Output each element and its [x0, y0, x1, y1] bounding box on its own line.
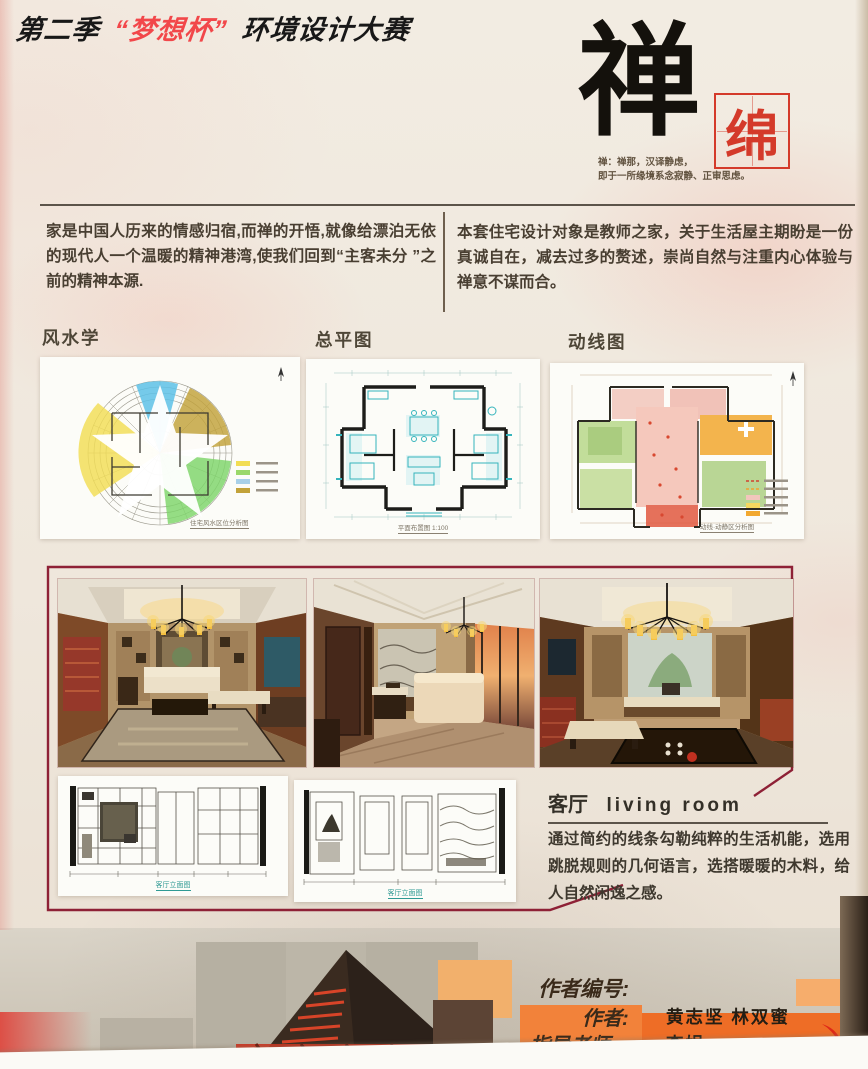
title-prefix: 第二季: [14, 15, 101, 45]
zen-definition-line1: 禅：禅那，汉译静虑，: [598, 156, 858, 170]
render-photo-2: [314, 579, 534, 767]
elevation-caption-2: 客厅立面图: [294, 888, 516, 898]
competition-poster: 第二季 “梦想杯” 环境设计大赛 禅 绵 禅：禅那，汉译静虑， 即于一所缘境系念…: [0, 0, 868, 1069]
living-room-heading-cn: 客厅: [548, 794, 588, 816]
poster-title: 第二季 “梦想杯” 环境设计大赛: [14, 8, 412, 47]
walls: [342, 387, 506, 509]
intro-paragraph-left: 家是中国人历来的情感归宿,而禅的开悟,就像给漂泊无依的现代人一个温暖的精神港湾,…: [46, 220, 436, 294]
author-names: 黄志坚 林双蜜: [666, 1004, 790, 1029]
label-circulation: 动线图: [568, 329, 627, 354]
living-room-description: 通过简约的线条勾勒纯粹的生活机能，选用跳脱规则的几何语言，选搭暖暖的木料，给人自…: [548, 826, 850, 907]
north-arrow-icon: [278, 367, 284, 381]
poster-left-edge: [0, 0, 14, 930]
title-suffix: 环境设计大赛: [240, 15, 411, 45]
intro-paragraph-right: 本套住宅设计对象是教师之家，关于生活屋主期盼是一份真诚自在，减去过多的赘述，崇尚…: [457, 221, 853, 295]
label-fengshui: 风水学: [42, 325, 101, 350]
title-highlight: “梦想杯”: [107, 15, 235, 45]
circulation-panel: 动线·动静区分析图: [550, 363, 804, 539]
elevation-drawing-2: [294, 780, 516, 902]
zen-definition: 禅：禅那，汉译静虑， 即于一所缘境系念寂静、正审思虑。: [598, 156, 858, 185]
horizontal-rule: [40, 204, 855, 206]
label-siteplan: 总平图: [315, 327, 374, 352]
column-divider: [443, 212, 445, 312]
living-room-heading: 客厅 living room: [548, 788, 828, 824]
elevation-caption-1: 客厅立面图: [58, 880, 288, 890]
fengshui-diagram: [40, 357, 300, 539]
render-photo-3: [540, 579, 793, 767]
elevation-card-2: 客厅立面图: [294, 780, 516, 902]
poster-right-edge: [855, 0, 868, 905]
fengshui-legend: [236, 461, 278, 493]
zen-definition-line2: 即于一所缘境系念寂静、正审思虑。: [598, 170, 858, 184]
fengshui-caption: 住宅风水区位分析图: [190, 517, 249, 527]
siteplan-panel: 平面布置图 1:100: [306, 359, 540, 539]
zen-calligraphy-char: 禅: [578, 14, 700, 148]
siteplan-drawing: [306, 359, 540, 539]
render-photo-1: [58, 579, 306, 767]
circulation-caption: 动线·动静区分析图: [700, 521, 754, 531]
author-label: 作者:: [582, 1002, 629, 1031]
elevation-card-1: 客厅立面图: [58, 776, 288, 896]
fengshui-panel: 住宅风水区位分析图: [40, 357, 300, 539]
north-arrow-icon: [790, 371, 796, 386]
circulation-drawing: [550, 363, 804, 539]
siteplan-caption: 平面布置图 1:100: [368, 522, 478, 532]
author-id-label: 作者编号:: [538, 973, 629, 1003]
elevation-drawing-1: [58, 776, 288, 896]
living-room-heading-en: living room: [606, 795, 741, 816]
